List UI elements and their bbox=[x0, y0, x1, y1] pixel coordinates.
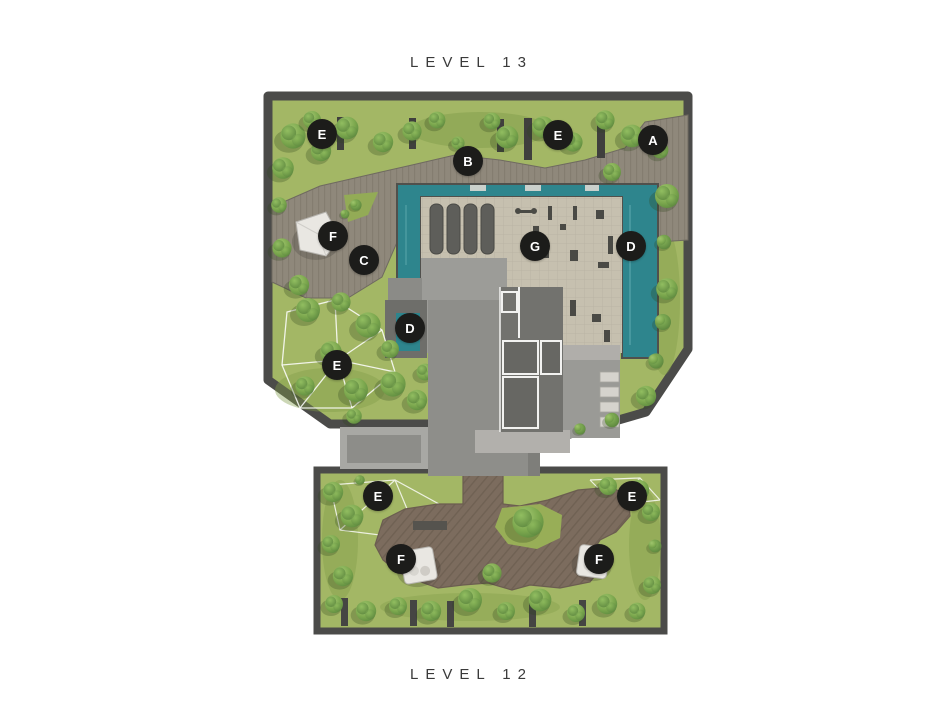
floorplan-page: LEVEL 13 bbox=[0, 0, 943, 717]
marker-f-level12: F bbox=[386, 544, 416, 574]
marker-f-level12: F bbox=[584, 544, 614, 574]
marker-c-level13: C bbox=[349, 245, 379, 275]
marker-g-level13: G bbox=[520, 231, 550, 261]
marker-layer: EBEAFCGDDEEEFF bbox=[0, 0, 943, 717]
marker-b-level13: B bbox=[453, 146, 483, 176]
marker-e-level13: E bbox=[322, 350, 352, 380]
marker-d-level13: D bbox=[616, 231, 646, 261]
marker-e-level12: E bbox=[617, 481, 647, 511]
marker-e-level13: E bbox=[307, 119, 337, 149]
marker-e-level12: E bbox=[363, 481, 393, 511]
marker-a-level13: A bbox=[638, 125, 668, 155]
marker-d-level13: D bbox=[395, 313, 425, 343]
marker-e-level13: E bbox=[543, 120, 573, 150]
marker-f-level13: F bbox=[318, 221, 348, 251]
page-title-level12: LEVEL 12 bbox=[0, 666, 943, 683]
